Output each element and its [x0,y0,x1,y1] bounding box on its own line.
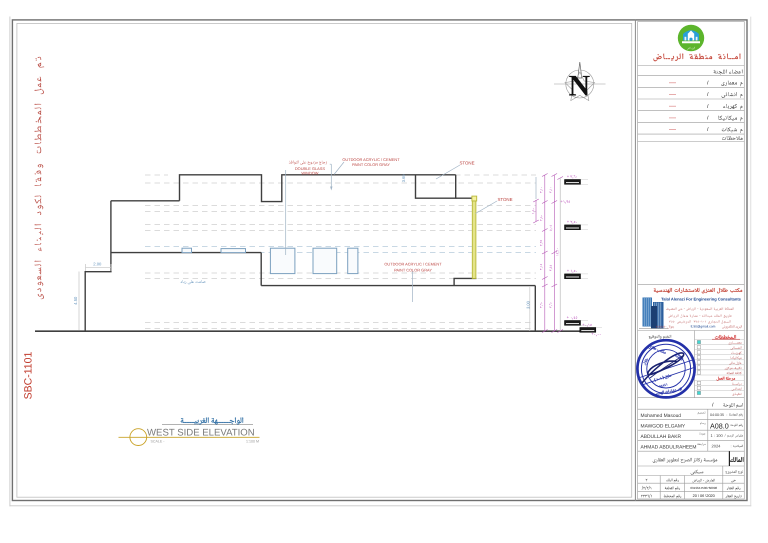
svg-text:/: / [712,403,714,409]
svg-text:A08.0: A08.0 [710,421,729,430]
svg-text:04:00:35: 04:00:35 [710,413,724,417]
svg-text:2024: 2024 [712,444,722,449]
svg-text:tt.90@gmail.com: tt.90@gmail.com [691,325,716,329]
svg-text:ABDULLAH BAKR: ABDULLAH BAKR [641,434,682,440]
svg-text:/: / [707,92,709,98]
svg-text:Mohamed Masoud: Mohamed Masoud [641,413,682,419]
svg-text:1 : 100: 1 : 100 [711,433,724,438]
svg-text:Talal Alenazi For Engineering: Talal Alenazi For Engineering Consultant… [661,296,742,301]
svg-text:0919644506760098: 0919644506760098 [690,486,717,490]
svg-text:/: / [707,127,709,133]
svg-text:/: / [707,104,709,110]
svg-text:AHMAD ABDULRAHEEM: AHMAD ABDULRAHEEM [641,445,697,451]
svg-text:/: / [707,80,709,86]
svg-text:MAWGOD ELGAMY: MAWGOD ELGAMY [641,424,686,430]
svg-text:20 \ 06 \2020: 20 \ 06 \2020 [693,494,715,498]
svg-text:/: / [707,116,709,122]
